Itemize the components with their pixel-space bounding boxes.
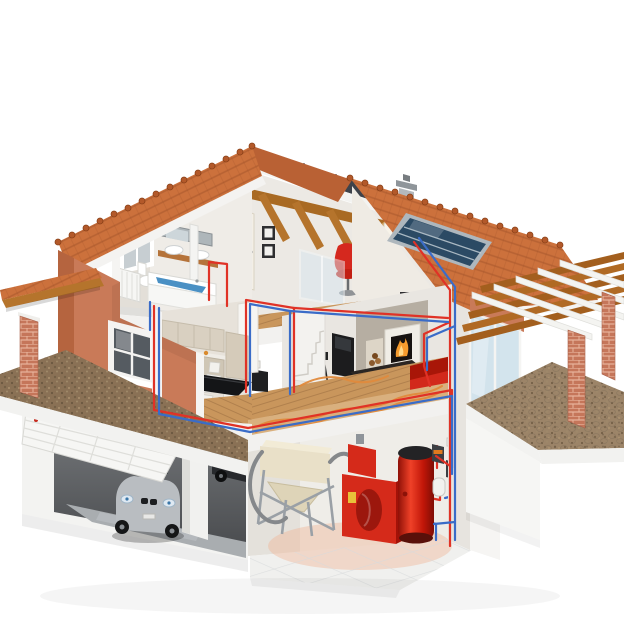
pergola-post-back bbox=[602, 292, 615, 380]
boiler-module bbox=[348, 444, 376, 478]
pergola-post-front bbox=[568, 330, 585, 428]
tv bbox=[332, 333, 354, 378]
boiler-label bbox=[348, 492, 356, 503]
scene-svg bbox=[0, 0, 624, 624]
house-cutaway-illustration bbox=[0, 0, 624, 624]
expansion-vessel bbox=[433, 478, 445, 496]
shower-column bbox=[190, 224, 198, 284]
staircase bbox=[293, 306, 325, 384]
hot-water-tank bbox=[398, 446, 434, 544]
bathroom-radiator bbox=[118, 268, 140, 302]
porch-brick-pillar bbox=[20, 316, 38, 398]
